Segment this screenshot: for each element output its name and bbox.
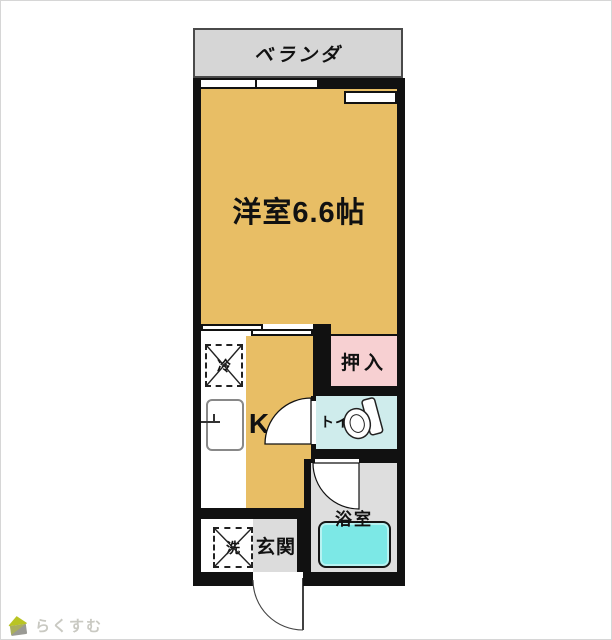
floor-plan: ベランダ 洋室6.6帖 押入 トイレ 浴室 玄関 冷: [0, 0, 612, 640]
closet-area: 押入: [331, 334, 397, 386]
watermark: らくすむ: [6, 612, 103, 638]
entrance-area: 玄関: [253, 519, 299, 572]
main-room: 洋室6.6帖: [201, 89, 397, 336]
refrigerator-label: 冷: [216, 356, 232, 376]
toilet-label: トイレ: [320, 412, 365, 432]
veranda-area: ベランダ: [193, 28, 403, 78]
washer-label: 洗: [225, 538, 241, 558]
house-icon: [6, 613, 30, 637]
watermark-brand: らくすむ: [35, 615, 103, 636]
door-opening: [311, 401, 316, 444]
bathroom-label: 浴室: [319, 505, 389, 530]
closet-label: 押入: [341, 348, 387, 375]
veranda-label: ベランダ: [254, 40, 342, 67]
wall: [313, 386, 397, 396]
washer-box: 洗: [213, 527, 253, 568]
window-icon: [201, 78, 317, 89]
shelf-counter: [344, 91, 397, 104]
main-room-label: 洋室6.6帖: [201, 189, 397, 231]
wall: [201, 508, 299, 519]
sliding-door-panel: [251, 329, 313, 336]
door-opening: [253, 572, 303, 586]
entrance-label: 玄関: [256, 532, 296, 559]
kitchen-label: K: [234, 404, 284, 444]
refrigerator-box: 冷: [205, 344, 243, 387]
door-opening: [315, 459, 359, 463]
toilet-area: トイレ: [316, 396, 397, 449]
wall: [304, 459, 311, 513]
wall: [297, 513, 311, 572]
window-mullion: [255, 80, 257, 87]
